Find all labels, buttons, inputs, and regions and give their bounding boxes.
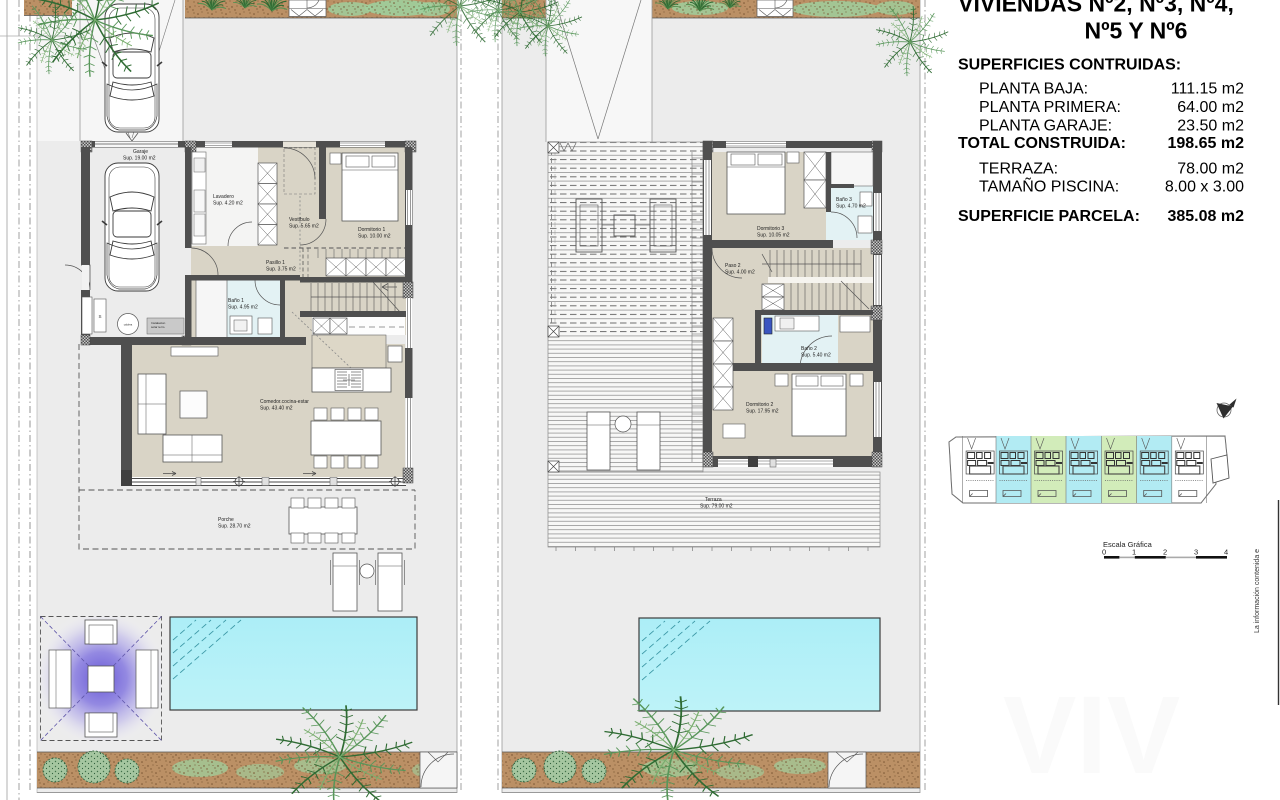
svg-text:Sup. 3.75 m2: Sup. 3.75 m2 xyxy=(266,267,296,273)
svg-text:Vestíbulo: Vestíbulo xyxy=(289,217,310,223)
svg-text:La información contenida e: La información contenida e xyxy=(1254,549,1261,633)
svg-text:caldera: caldera xyxy=(124,323,133,327)
svg-text:SUPERFICIE PARCELA:: SUPERFICIE PARCELA: xyxy=(958,208,1140,225)
svg-text:VIVIENDAS Nº2, Nº3, Nº4,: VIVIENDAS Nº2, Nº3, Nº4, xyxy=(958,0,1234,17)
svg-text:0: 0 xyxy=(1102,548,1106,557)
svg-text:Sup. 4.20 m2: Sup. 4.20 m2 xyxy=(213,201,243,207)
svg-text:Sup. 5.40 m2: Sup. 5.40 m2 xyxy=(801,353,831,359)
svg-text:solar term.: solar term. xyxy=(151,325,165,329)
svg-text:Nº5 Y Nº6: Nº5 Y Nº6 xyxy=(1085,18,1188,44)
svg-text:SUPERFICIES CONTRUIDAS:: SUPERFICIES CONTRUIDAS: xyxy=(958,57,1181,74)
svg-text:Sup. 5.65 m2: Sup. 5.65 m2 xyxy=(289,224,319,230)
svg-text:Porche: Porche xyxy=(218,517,234,523)
svg-text:Sup. 79.00 m2: Sup. 79.00 m2 xyxy=(700,504,733,510)
svg-text:Baño 3: Baño 3 xyxy=(836,197,852,203)
svg-text:TOTAL CONSTRUIDA:: TOTAL CONSTRUIDA: xyxy=(958,135,1126,152)
svg-text:Dormitorio 1: Dormitorio 1 xyxy=(358,227,385,233)
svg-text:Sup. 28.70 m2: Sup. 28.70 m2 xyxy=(218,524,251,530)
svg-text:Sup. 17.95 m2: Sup. 17.95 m2 xyxy=(746,409,779,415)
svg-text:Sup. 4.00 m2: Sup. 4.00 m2 xyxy=(725,270,755,276)
svg-text:Escala Gráfica: Escala Gráfica xyxy=(1103,540,1153,549)
svg-text:111.15 m2: 111.15 m2 xyxy=(1171,81,1244,98)
svg-text:2: 2 xyxy=(1163,548,1167,557)
svg-text:1: 1 xyxy=(1132,548,1136,557)
svg-text:4: 4 xyxy=(1224,548,1228,557)
svg-text:23.50 m2: 23.50 m2 xyxy=(1177,117,1244,134)
svg-text:Sup. 10.05 m2: Sup. 10.05 m2 xyxy=(757,233,790,239)
svg-text:Lavadero: Lavadero xyxy=(213,194,234,200)
svg-text:Baño 2: Baño 2 xyxy=(801,346,817,352)
svg-text:VIV: VIV xyxy=(1003,674,1180,797)
svg-text:Sup. 10.00 m2: Sup. 10.00 m2 xyxy=(358,234,391,240)
svg-text:Paso 2: Paso 2 xyxy=(725,263,741,269)
svg-text:Comedor.cocina-estar: Comedor.cocina-estar xyxy=(260,399,309,405)
svg-text:Sup. 19.00 m2: Sup. 19.00 m2 xyxy=(123,156,156,162)
svg-text:Pasillo 1: Pasillo 1 xyxy=(266,260,285,266)
svg-text:PLANTA PRIMERA:: PLANTA PRIMERA: xyxy=(979,99,1121,116)
svg-text:TAMAÑO PISCINA:: TAMAÑO PISCINA: xyxy=(979,176,1119,196)
svg-text:Sup. 43.40 m2: Sup. 43.40 m2 xyxy=(260,406,293,412)
svg-text:78.00 m2: 78.00 m2 xyxy=(1177,161,1244,178)
svg-text:385.08 m2: 385.08 m2 xyxy=(1167,208,1244,225)
svg-text:S: S xyxy=(98,314,101,319)
svg-text:Baño 1: Baño 1 xyxy=(228,298,244,304)
svg-text:Terraza: Terraza xyxy=(705,497,722,503)
svg-text:TERRAZA:: TERRAZA: xyxy=(979,161,1058,178)
svg-text:Sup. 4.70 m2: Sup. 4.70 m2 xyxy=(836,204,866,210)
svg-text:PLANTA BAJA:: PLANTA BAJA: xyxy=(979,81,1088,98)
svg-text:3: 3 xyxy=(1194,548,1198,557)
svg-text:PLANTA GARAJE:: PLANTA GARAJE: xyxy=(979,117,1112,134)
svg-text:Garaje: Garaje xyxy=(133,149,148,155)
svg-text:Dormitorio 2: Dormitorio 2 xyxy=(746,402,773,408)
svg-text:198.65 m2: 198.65 m2 xyxy=(1167,135,1244,152)
svg-text:Dormitorio 3: Dormitorio 3 xyxy=(757,226,784,232)
svg-text:8.00 x 3.00: 8.00 x 3.00 xyxy=(1165,179,1244,196)
svg-text:Sup. 4.95 m2: Sup. 4.95 m2 xyxy=(228,305,258,311)
svg-text:64.00 m2: 64.00 m2 xyxy=(1177,99,1244,116)
